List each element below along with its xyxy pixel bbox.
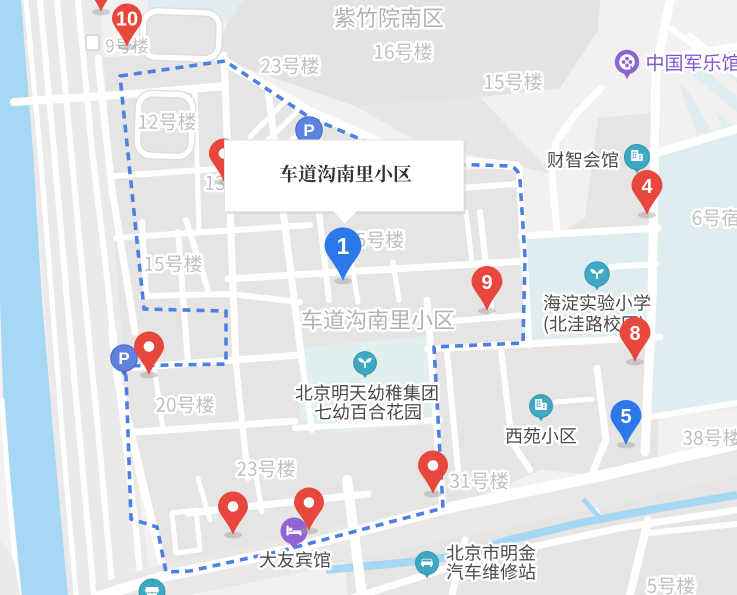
svg-text:1: 1 xyxy=(337,233,350,259)
svg-text:9: 9 xyxy=(481,272,492,294)
svg-text:5: 5 xyxy=(620,406,631,428)
svg-text:4: 4 xyxy=(641,176,653,198)
svg-text:8: 8 xyxy=(629,323,640,345)
svg-text:10: 10 xyxy=(116,9,138,31)
svg-text:P: P xyxy=(303,121,314,140)
svg-text:P: P xyxy=(118,349,129,368)
